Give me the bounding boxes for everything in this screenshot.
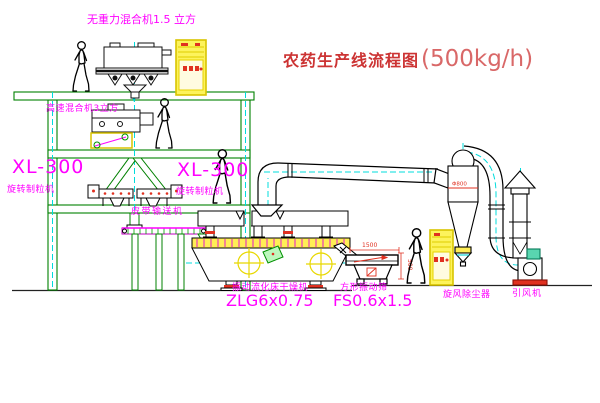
label-granulator-left: 旋转制粒机 [7, 186, 55, 195]
person-roof [73, 42, 89, 91]
label-belt-conveyor: 皮带输送机 [131, 208, 184, 217]
control-cabinet-2 [430, 230, 453, 285]
person-ground [407, 229, 425, 283]
label-square-sieve-model: FS0.6x1.5 [333, 293, 412, 309]
process-flow-diagram-page: Φ800 1500 500 [0, 0, 600, 403]
label-granulator-left-model: XL-300 [12, 158, 84, 177]
gravity-free-mixer [96, 43, 171, 98]
title-text: 农药生产线流程图 [283, 47, 419, 71]
drawing-title: 农药生产线流程图 (500kg/h) [283, 46, 533, 72]
person-level2 [156, 99, 172, 148]
vibrating-fluid-bed-dryer [192, 211, 358, 291]
control-cabinet-1 [176, 40, 206, 95]
label-high-speed-mixer: 高速混合机3立方 [46, 105, 119, 114]
label-cyclone: 旋风除尘器 [443, 291, 491, 300]
title-capacity: (500kg/h) [421, 46, 533, 72]
exhaust-duct [252, 163, 452, 216]
label-fluid-bed-dryer-model: ZLG6x0.75 [226, 293, 314, 309]
label-induced-draft-fan: 引风机 [512, 290, 542, 299]
hood-stubs [203, 226, 333, 237]
sieve-length-dim: 1500 [362, 242, 377, 249]
square-vibrating-sieve: 1500 500 [346, 242, 413, 284]
label-gravity-mixer: 无重力混合机1.5 立方 [87, 14, 196, 25]
label-granulator-right: 旋转制粒机 [176, 188, 224, 197]
cyclone-dim-text: Φ800 [452, 182, 467, 188]
exhaust-stack [505, 171, 535, 258]
label-granulator-right-model: XL-300 [177, 161, 249, 180]
y-splitter-chute [105, 158, 167, 191]
